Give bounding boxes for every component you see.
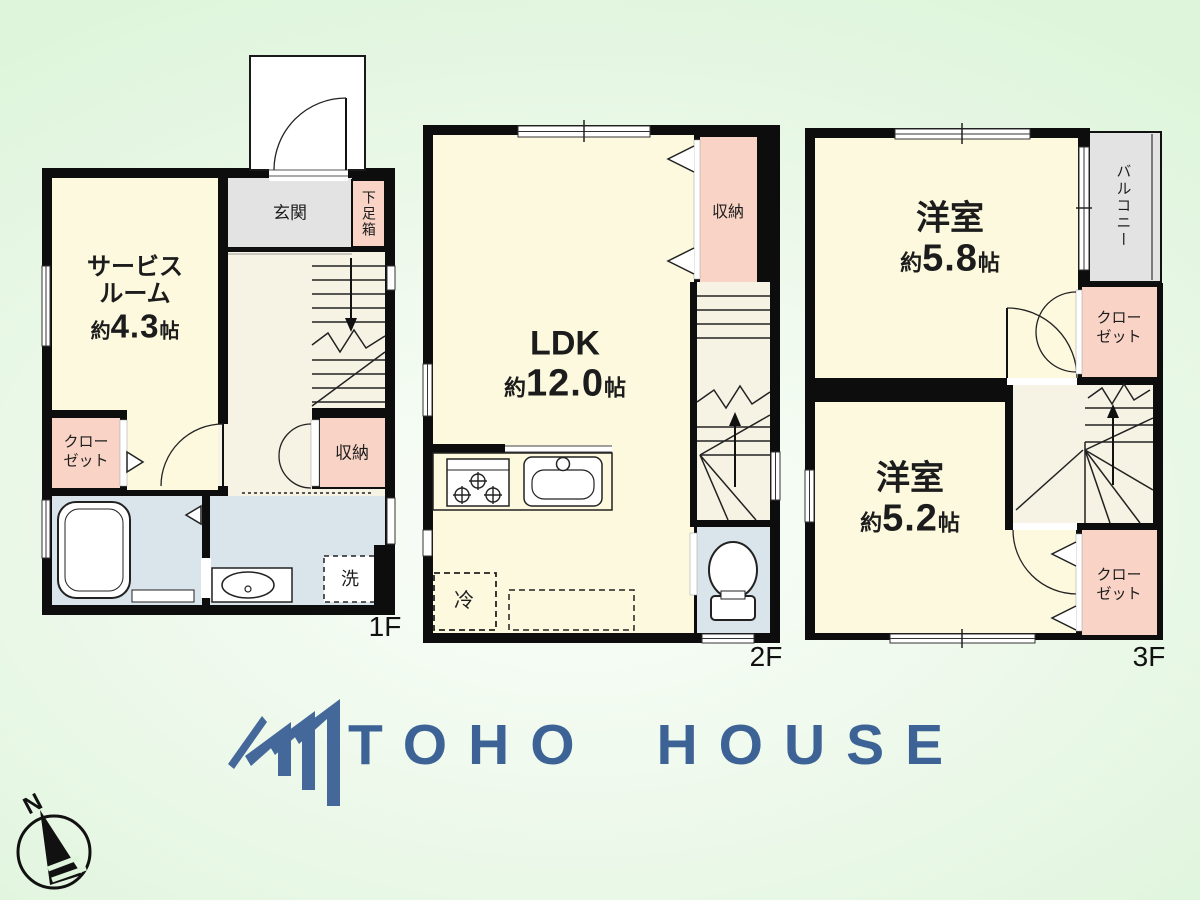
western-room-58-label: 洋室 約5.8帖	[900, 200, 1000, 281]
entrance-label: 玄関	[273, 203, 307, 222]
stairs-3f	[1013, 385, 1153, 523]
fridge-label: 冷	[454, 590, 474, 612]
stairs-1f	[312, 252, 385, 408]
storage-2f-label: 収納	[712, 204, 744, 222]
floor-plan-page: N サービス ルーム 約4.3帖 玄関 下足箱 クローゼット 収納 洗 1F L…	[0, 0, 1200, 900]
closet-upper-label: クローゼット	[1096, 309, 1141, 347]
entrance-porch	[250, 56, 365, 170]
service-room-label: サービス ルーム 約4.3帖	[87, 255, 183, 346]
storage-1f-label: 収納	[335, 443, 369, 462]
western-room-52-label: 洋室 約5.2帖	[860, 460, 960, 541]
closet-lower-label: クローゼット	[1096, 566, 1141, 604]
closet-1f-label: クローゼット	[63, 433, 108, 471]
bathtub	[58, 502, 130, 598]
laundry-label: 洗	[341, 569, 359, 589]
floor-label-2f: 2F	[750, 641, 783, 673]
toho-house-logo-text: TOHO HOUSE	[348, 712, 964, 778]
ldk-label: LDK 約12.0帖	[504, 325, 626, 406]
hallway-1f	[228, 252, 312, 496]
floor-label-3f: 3F	[1133, 641, 1166, 673]
toho-house-logo-icon	[228, 699, 340, 806]
shoe-box-label: 下足箱	[360, 190, 376, 238]
toilet-fixture	[709, 542, 757, 598]
floor-label-1f: 1F	[369, 611, 402, 643]
stairs-2f	[697, 282, 770, 520]
balcony-label: バルコニー	[1114, 164, 1131, 249]
compass-icon: N	[18, 788, 90, 888]
